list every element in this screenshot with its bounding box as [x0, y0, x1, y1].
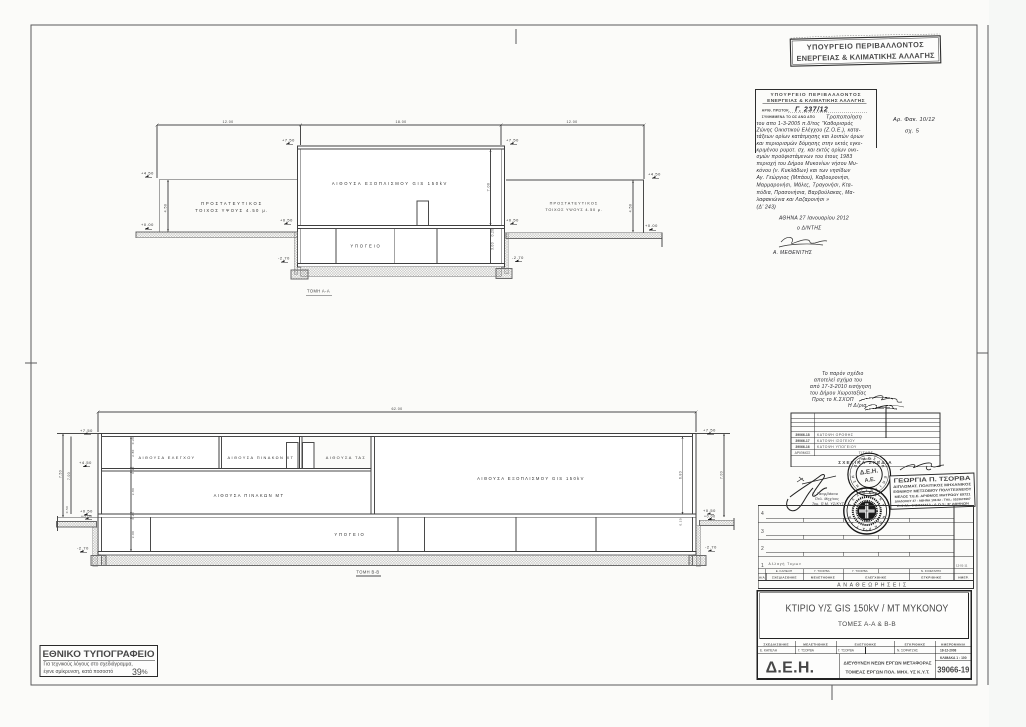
svg-text:ΠΡΟΣΤΑΤΕΥΤΙΚΟΣ: ΠΡΟΣΤΑΤΕΥΤΙΚΟΣ	[550, 202, 599, 206]
svg-text:+7.50: +7.50	[282, 138, 295, 143]
svg-text:ΑΝΑΘΕΩΡΗΣΕΙΣ: ΑΝΑΘΕΩΡΗΣΕΙΣ	[837, 583, 909, 589]
svg-text:7.00: 7.00	[720, 471, 724, 479]
svg-text:ΑΙΘΟΥΣΑ ΕΞΟΠΛΙΣΜΟΥ GIS 150kV: ΑΙΘΟΥΣΑ ΕΞΟΠΛΙΣΜΟΥ GIS 150kV	[477, 476, 585, 481]
svg-text:ΣΧΕΔΙΑΣΘΗΚΕ: ΣΧΕΔΙΑΣΘΗΚΕ	[763, 642, 788, 646]
svg-text:ΑΙΘΟΥΣΑ ΤΑΣ: ΑΙΘΟΥΣΑ ΤΑΣ	[326, 455, 366, 460]
svg-text:από 17-3-2010 εισήγηση: από 17-3-2010 εισήγηση	[810, 383, 871, 390]
svg-text:Αρ. Φακ. 10/12: Αρ. Φακ. 10/12	[892, 117, 936, 123]
svg-text:+4.50: +4.50	[648, 172, 661, 177]
svg-text:6.80: 6.80	[678, 471, 682, 479]
svg-text:ΕΓΚΡΙΘΗΚΕ: ΕΓΚΡΙΘΗΚΕ	[905, 642, 926, 646]
svg-text:κόνου (ν. Κυκλάδων) και των νη: κόνου (ν. Κυκλάδων) και των νησίδων	[757, 167, 851, 174]
svg-text:ΔΙΕΥΘΥΝΣΗ ΝΕΩΝ ΕΡΓΩΝ ΜΕΤΑΦΟΡΑΣ: ΔΙΕΥΘΥΝΣΗ ΝΕΩΝ ΕΡΓΩΝ ΜΕΤΑΦΟΡΑΣ	[844, 661, 932, 667]
svg-text:ΑΙΘΟΥΣΑ ΠΙΝΑΚΩΝ ΧΤ: ΑΙΘΟΥΣΑ ΠΙΝΑΚΩΝ ΧΤ	[228, 455, 295, 460]
svg-text:ΕΝΕΡΓΕΙΑΣ & ΚΛΙΜΑΤΙΚΗΣ ΑΛΛΑΓΗ: ΕΝΕΡΓΕΙΑΣ & ΚΛΙΜΑΤΙΚΗΣ ΑΛΛΑΓΗΣ	[767, 98, 865, 104]
svg-text:ΕΓΚΡΙΘΗΚΕ: ΕΓΚΡΙΘΗΚΕ	[921, 575, 941, 579]
svg-text:62.00: 62.00	[392, 407, 403, 411]
svg-text:Ε. ΚΑΠΕΛΗ: Ε. ΚΑΠΕΛΗ	[760, 649, 778, 653]
svg-text:-2.70: -2.70	[77, 545, 89, 550]
svg-text:18.00: 18.00	[396, 120, 407, 124]
svg-text:+7.50: +7.50	[703, 428, 716, 433]
svg-text:+4.50: +4.50	[79, 460, 92, 465]
svg-text:+0.00: +0.00	[81, 515, 93, 519]
svg-text:Γ. ΤΣΟΡΒΑ: Γ. ΤΣΟΡΒΑ	[798, 649, 815, 653]
svg-text:ΑΙΘΟΥΣΑ ΠΙΝΑΚΩΝ ΜΤ: ΑΙΘΟΥΣΑ ΠΙΝΑΚΩΝ ΜΤ	[214, 493, 285, 498]
svg-text:Τροποποίηση: Τροποποίηση	[826, 115, 862, 121]
svg-text:Ο: Ο	[868, 456, 871, 460]
svg-text:ΣΥΝΗΜΜΕΝΑ ΤΟ ΩΣ ΑΝΩ ΑΠΟ: ΣΥΝΗΜΜΕΝΑ ΤΟ ΩΣ ΑΝΩ ΑΠΟ	[762, 115, 816, 119]
svg-text:+0.00: +0.00	[141, 222, 154, 227]
svg-text:Η Δ/ρια: Η Δ/ρια	[848, 403, 866, 409]
svg-text:7.50: 7.50	[59, 470, 63, 478]
svg-text:2: 2	[761, 546, 764, 552]
svg-text:Για τεχνικούς λόγους στο σχεδι: Για τεχνικούς λόγους στο σχεδιάγραμμα,	[44, 661, 133, 668]
svg-text:αποτελεί σχήμα του: αποτελεί σχήμα του	[814, 377, 862, 384]
svg-text:-2.70: -2.70	[512, 255, 524, 260]
svg-text:ΜΕΛΕΤΗΘΗΚΕ: ΜΕΛΕΤΗΘΗΚΕ	[803, 642, 828, 646]
svg-text:ΣΧΕΔΙΑΣΘΗΚΕ: ΣΧΕΔΙΑΣΘΗΚΕ	[772, 575, 797, 579]
svg-text:ΕΛΕΓΧΘΗΚΕ: ΕΛΕΓΧΘΗΚΕ	[865, 575, 886, 579]
svg-text:ΥΠΟΓΕΙΟ: ΥΠΟΓΕΙΟ	[350, 244, 381, 249]
svg-text:λαφακιώνια και Λαζαρονήσι »: λαφακιώνια και Λαζαρονήσι »	[756, 196, 830, 203]
svg-text:4: 4	[761, 511, 764, 517]
svg-text:ο Δ/ΝΤΗΣ: ο Δ/ΝΤΗΣ	[797, 226, 822, 232]
svg-text:18-12-2008: 18-12-2008	[940, 649, 957, 653]
svg-text:4.50: 4.50	[164, 204, 168, 213]
svg-text:0.20: 0.20	[131, 437, 135, 444]
svg-text:ΕΘΝΙΚΟ ΤΥΠΟΓΡΑΦΕΙΟ: ΕΘΝΙΚΟ ΤΥΠΟΓΡΑΦΕΙΟ	[43, 648, 155, 659]
svg-text:Δ.Ε.Η.: Δ.Ε.Η.	[766, 660, 815, 677]
svg-text:Πολ. Μηχ/κος: Πολ. Μηχ/κος	[815, 497, 839, 501]
svg-text:3.80: 3.80	[131, 488, 135, 495]
svg-text:-2.70: -2.70	[278, 256, 290, 261]
svg-text:0.50: 0.50	[65, 506, 69, 513]
svg-text:Ν. ΣΟΦΑΤΖΗΣ: Ν. ΣΟΦΑΤΖΗΣ	[921, 569, 941, 573]
svg-text:+4.50: +4.50	[141, 171, 154, 176]
svg-text:0.20: 0.20	[491, 229, 495, 237]
svg-text:3: 3	[761, 529, 764, 535]
svg-text:+7.50: +7.50	[80, 428, 93, 433]
svg-text:39066-16: 39066-16	[795, 445, 809, 449]
svg-text:πόδια, Πρασονήσια, Βαρβούλακας: πόδια, Πρασονήσια, Βαρβούλακας, Μα-	[757, 189, 855, 196]
svg-text:+0.50: +0.50	[80, 509, 93, 514]
svg-text:+0.50: +0.50	[703, 508, 716, 513]
svg-text:Το παρόν σχέδιο: Το παρόν σχέδιο	[822, 370, 864, 377]
svg-text:ΥΠΟΥΡΓΕΙΟ ΠΕΡΙΒΑΛΛΟΝΤΟΣ: ΥΠΟΥΡΓΕΙΟ ΠΕΡΙΒΑΛΛΟΝΤΟΣ	[771, 92, 862, 98]
svg-text:Ζώνης Οικιστικού Ελέγχου (Ζ.Ο.: Ζώνης Οικιστικού Ελέγχου (Ζ.Ο.Ε.), κατα-	[756, 127, 861, 134]
svg-text:39066-19: 39066-19	[937, 666, 970, 675]
svg-text:ΜΕΛΕΤΗΘΗΚΕ: ΜΕΛΕΤΗΘΗΚΕ	[811, 575, 835, 579]
svg-text:0.20: 0.20	[679, 518, 683, 525]
svg-text:+0.50: +0.50	[506, 218, 519, 223]
svg-text:ΚΑΤΟΨΗ ΥΠΟΓΕΙΟΥ: ΚΑΤΟΨΗ ΥΠΟΓΕΙΟΥ	[817, 445, 857, 449]
svg-text:σχ. 5: σχ. 5	[905, 129, 920, 135]
svg-text:του Δήμου Χωροταξίας: του Δήμου Χωροταξίας	[810, 390, 867, 397]
svg-text:12-01-11: 12-01-11	[956, 564, 968, 568]
svg-text:+0.50: +0.50	[280, 218, 293, 223]
svg-text:περιοχή του Δήμου Μυκονίων νήσ: περιοχή του Δήμου Μυκονίων νήσου Μυ-	[757, 160, 859, 167]
svg-text:1: 1	[761, 563, 764, 569]
svg-text:+0.00: +0.00	[645, 223, 658, 228]
svg-text:7.00: 7.00	[486, 183, 490, 192]
svg-text:ΤΟΜΕΑΣ ΕΡΓΩΝ ΠΟΛ. ΜΗΧ. ΥΣ Κ.Υ.: ΤΟΜΕΑΣ ΕΡΓΩΝ ΠΟΛ. ΜΗΧ. ΥΣ Κ.Υ.Τ.	[846, 670, 930, 676]
svg-text:ΤΟΜΕΣ Α-Α & Β-Β: ΤΟΜΕΣ Α-Α & Β-Β	[838, 621, 896, 628]
svg-text:+0.00: +0.00	[704, 514, 716, 518]
svg-text:4.50: 4.50	[629, 204, 633, 213]
svg-text:ΠΡΟΣΤΑΤΕΥΤΙΚΟΣ: ΠΡΟΣΤΑΤΕΥΤΙΚΟΣ	[201, 201, 263, 206]
svg-text:Α. ΜΕΘΕΝΙΤΗΣ: Α. ΜΕΘΕΝΙΤΗΣ	[772, 250, 813, 256]
svg-text:2.80: 2.80	[131, 449, 135, 456]
svg-text:ΤΟΜΗ Α-Α: ΤΟΜΗ Α-Α	[307, 289, 330, 294]
svg-text:ΑΘΗΝΑ 27 Ιανουαρίου 2012: ΑΘΗΝΑ 27 Ιανουαρίου 2012	[778, 215, 849, 221]
svg-text:7.00: 7.00	[67, 472, 71, 480]
svg-text:-2.70: -2.70	[705, 545, 717, 550]
svg-text:ΑΡΙΘ. ΠΡΩΤΟΚ.: ΑΡΙΘ. ΠΡΩΤΟΚ.	[762, 108, 790, 112]
svg-text:(Δ’ 243): (Δ’ 243)	[757, 204, 777, 210]
svg-text:ΤΟΙΧΟΣ ΥΨΟΥΣ 4.50 μ.: ΤΟΙΧΟΣ ΥΨΟΥΣ 4.50 μ.	[195, 208, 268, 213]
svg-text:Γ. 237/12: Γ. 237/12	[795, 107, 828, 114]
svg-text:κριμένου ρυμοτ. σχ. και εκτός: κριμένου ρυμοτ. σχ. και εκτός ορίων οικι…	[757, 146, 859, 153]
svg-text:Αλλαγή Τομων: Αλλαγή Τομων	[769, 562, 802, 566]
svg-text:ΚΤΙΡΙΟ Υ/Σ GIS 150kV / ΜΤ ΜΥΚΟ: ΚΤΙΡΙΟ Υ/Σ GIS 150kV / ΜΤ ΜΥΚΟΝΟΥ	[786, 604, 949, 615]
svg-text:ΗΜΕΡΟΜΗΝΙΑ: ΗΜΕΡΟΜΗΝΙΑ	[941, 642, 966, 646]
svg-text:ΚΛΙΜΑΚΑ 1 : 100: ΚΛΙΜΑΚΑ 1 : 100	[940, 656, 967, 660]
svg-text:Ν. ΣΟΦΑΤΖΗΣ: Ν. ΣΟΦΑΤΖΗΣ	[897, 649, 918, 653]
svg-text:ΗΜΕΡ.: ΗΜΕΡ.	[958, 575, 969, 579]
svg-text:ΕΛΕΓΧΘΗΚΕ: ΕΛΕΓΧΘΗΚΕ	[855, 642, 877, 646]
svg-text:Μαρμαρονήσι, Μάλες, Τραγονήσι,: Μαρμαρονήσι, Μάλες, Τραγονήσι, Κτα-	[757, 182, 853, 189]
svg-text:ΚΑΤΟΨΗ ΟΡΟΦΗΣ: ΚΑΤΟΨΗ ΟΡΟΦΗΣ	[817, 433, 853, 437]
svg-text:Ε. ΚΑΠΕΛΗ: Ε. ΚΑΠΕΛΗ	[776, 569, 793, 573]
svg-text:12.00: 12.00	[567, 120, 578, 124]
svg-text:έγινε σμίκρυνση, κατά ποσοστό: έγινε σμίκρυνση, κατά ποσοστό	[44, 668, 114, 675]
svg-text:ΚΑΤΟΨΗ ΙΣΟΓΕΙΟΥ: ΚΑΤΟΨΗ ΙΣΟΓΕΙΟΥ	[817, 439, 855, 443]
svg-text:ΥΠΟΓΕΙΟ: ΥΠΟΓΕΙΟ	[334, 532, 365, 537]
svg-text:Αγ. Γεώργιος (Μπάου), Καβουρον: Αγ. Γεώργιος (Μπάου), Καβουρονήσι,	[756, 174, 851, 181]
svg-text:Α/Α: Α/Α	[759, 575, 766, 579]
svg-text:τάξεων ορίων κατάτμησης και λο: τάξεων ορίων κατάτμησης και λοιπών όρων	[757, 133, 864, 140]
svg-text:0.20: 0.20	[131, 512, 135, 519]
svg-text:Γ. Τσορβάκου: Γ. Τσορβάκου	[812, 492, 838, 496]
svg-text:Γ. ΤΣΟΡΒΑ: Γ. ΤΣΟΡΒΑ	[814, 569, 830, 573]
svg-text:και περιορισμών δόμησης στην ε: και περιορισμών δόμησης στην εκτός εγκε-	[757, 140, 863, 147]
svg-text:0.20: 0.20	[131, 466, 135, 473]
svg-text:3.00: 3.00	[131, 531, 135, 538]
svg-text:ΑΙΘΟΥΣΑ ΕΞΟΠΛΙΣΜΟΥ GIS 150kV: ΑΙΘΟΥΣΑ ΕΞΟΠΛΙΣΜΟΥ GIS 150kV	[332, 181, 448, 186]
svg-text:σμών προϋφιστάμενων του έτους: σμών προϋφιστάμενων του έτους 1983	[757, 153, 853, 160]
svg-text:Γ. ΤΣΟΡΒΑ: Γ. ΤΣΟΡΒΑ	[838, 649, 855, 653]
svg-text:12.00: 12.00	[223, 120, 234, 124]
svg-text:+7.50: +7.50	[506, 138, 519, 143]
svg-text:39066-18: 39066-18	[795, 433, 809, 437]
svg-text:του απο 1-3-2005 π.δ/τος “Καθο: του απο 1-3-2005 π.δ/τος “Καθορισμός	[757, 120, 854, 127]
svg-text:ΑΙΘΟΥΣΑ ΕΛΕΓΧΟΥ: ΑΙΘΟΥΣΑ ΕΛΕΓΧΟΥ	[138, 455, 195, 460]
svg-text:ΤΟΙΧΟΣ ΥΨΟΥΣ 4.50 μ.: ΤΟΙΧΟΣ ΥΨΟΥΣ 4.50 μ.	[545, 208, 602, 212]
svg-text:39%: 39%	[132, 667, 148, 677]
svg-text:ΑΡΙΘΜΟΣ: ΑΡΙΘΜΟΣ	[795, 451, 811, 455]
svg-text:ΤΟΜΗ Β-Β: ΤΟΜΗ Β-Β	[356, 570, 379, 575]
svg-text:3.00: 3.00	[491, 242, 495, 250]
svg-text:39066-17: 39066-17	[795, 439, 809, 443]
svg-text:Γ. ΤΣΟΡΒΑ: Γ. ΤΣΟΡΒΑ	[852, 569, 868, 573]
